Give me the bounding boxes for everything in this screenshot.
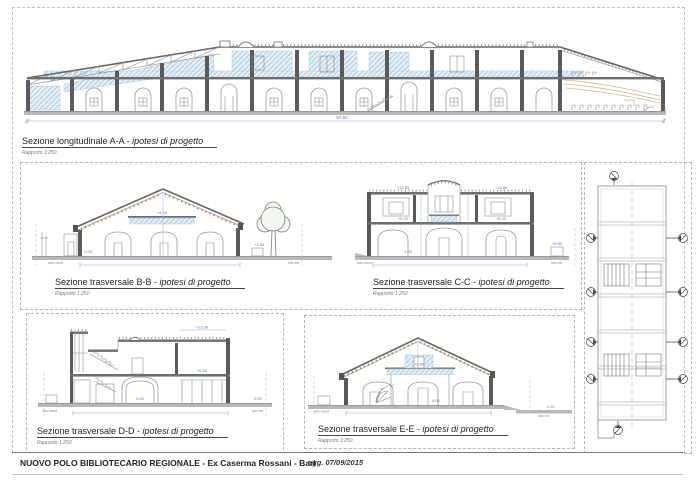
structure-walls <box>344 376 493 405</box>
ground-floor <box>74 377 226 403</box>
section-dd-title: Sezione trasversale D-D - ipotesi di pro… <box>37 426 228 438</box>
sheet-title: NUOVO POLO BIBLIOTECARIO REGIONALE - Ex … <box>20 458 316 468</box>
section-aa-scale: Rapporto 1:250 <box>22 150 56 156</box>
cart-glyph <box>252 248 263 256</box>
elevation-ground: 0.00 <box>84 249 93 254</box>
section-ee-scale: Rapporto 1:250 <box>318 438 352 444</box>
cart-glyph <box>46 395 57 403</box>
dimension-line <box>373 228 575 268</box>
building-outline <box>598 182 666 438</box>
section-cc-drawing: +12.05 +12.80 +5.20 +5.20 0.00 +0.80 lat… <box>355 168 585 280</box>
glass-band <box>429 215 459 223</box>
section-bb-scale: Rapporto 1:250 <box>55 291 89 297</box>
section-dd-scale: Rapporto 1:250 <box>37 440 71 446</box>
arched-windows <box>86 82 552 111</box>
side-label-left: lato ovest <box>357 261 372 265</box>
section-bb-title: Sezione trasversale B-B - ipotesi di pro… <box>55 277 245 289</box>
elevation-mezzanine: +3.50 <box>414 362 425 367</box>
elevation-ground: 0.00 <box>404 249 413 254</box>
side-label-left: lato ovest <box>42 409 57 413</box>
ground-floor-arches <box>378 228 516 256</box>
sheet-date: agg. 07/09/2015 <box>308 458 363 467</box>
section-ee-drawing: +3.50 0.00 -1.20 lato ovest lato est <box>306 318 576 418</box>
cart-glyph <box>318 396 330 405</box>
side-label-left: lato ovest <box>48 261 63 265</box>
hatched-areas <box>28 51 584 110</box>
side-label-right: lato est <box>288 261 299 265</box>
elevation-exterior: -1.20 <box>545 404 555 409</box>
cart-glyph <box>551 247 563 256</box>
section-aa-drawing: 97.80 <box>24 30 669 130</box>
side-label-right: lato est <box>252 409 263 413</box>
side-label-right: lato est <box>538 414 549 418</box>
roof-structure <box>70 330 228 352</box>
side-label-right: lato est <box>551 261 562 265</box>
elevation-floor: +6.50 <box>197 368 208 373</box>
elevation-mezzanine: +4.20 <box>157 210 168 215</box>
elevation-floor-right: +5.20 <box>496 216 507 221</box>
ground-line <box>308 405 572 414</box>
dimension-total: 97.80 <box>336 115 348 120</box>
tower-glazing <box>73 334 87 372</box>
elevation-exterior: +0.80 <box>552 241 563 246</box>
side-annex <box>40 232 77 256</box>
section-markers <box>587 172 688 435</box>
side-label-left: lato ovest <box>314 410 329 414</box>
upper-floor-details <box>132 358 143 374</box>
section-cc-scale: Rapporto 1:250 <box>373 291 407 297</box>
stair-cores <box>604 264 661 376</box>
interior-arches <box>105 232 223 256</box>
elevation-exterior: 0.00 <box>254 396 263 401</box>
section-bb-drawing: +4.20 0.00 +1.80 lato ovest lato est <box>30 168 350 280</box>
section-aa-title: Sezione longitudinale A-A - ipotesi di p… <box>22 136 217 148</box>
structure-walls <box>367 192 534 256</box>
section-ee-title: Sezione trasversale E-E - ipotesi di pro… <box>318 424 508 436</box>
elevation-ground: 0.00 <box>136 396 145 401</box>
elevation-ground: 0.00 <box>432 398 441 403</box>
section-dd-drawing: +13.30 +6.50 0.00 0.00 lato ovest lato e… <box>30 318 280 422</box>
key-plan-drawing <box>584 162 690 452</box>
elevation-floor-left: +5.20 <box>398 216 409 221</box>
elevation-exterior: +1.80 <box>254 242 265 247</box>
elevation-top: +13.30 <box>196 325 209 330</box>
mezzanine-glass: +4.20 <box>128 192 196 256</box>
footer-title-bar: NUOVO POLO BIBLIOTECARIO REGIONALE - Ex … <box>12 452 683 475</box>
elevation-parapet-right: +12.80 <box>495 185 508 190</box>
upper-windows <box>383 196 511 216</box>
dimension-line: 97.80 <box>25 115 666 124</box>
elevation-parapet-left: +12.05 <box>397 185 410 190</box>
section-cc-title: Sezione trasversale C-C - ipotesi di pro… <box>373 277 564 289</box>
